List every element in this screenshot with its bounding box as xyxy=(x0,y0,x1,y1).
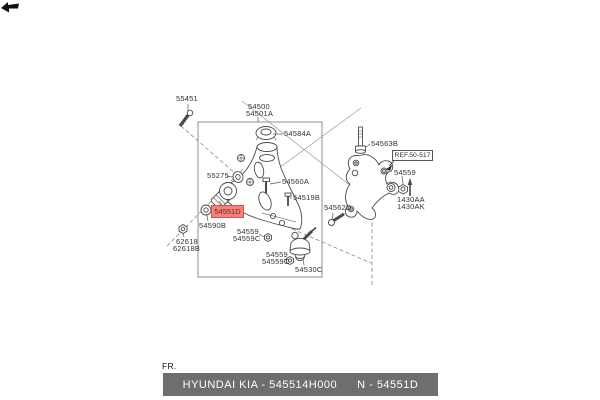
part-label-54530c[interactable]: 54530C xyxy=(295,266,322,274)
nut-54559-knuckle-drawing xyxy=(399,185,408,195)
part-label-55451[interactable]: 55451 xyxy=(176,95,198,103)
part-label-62618b[interactable]: 62618B xyxy=(173,245,200,253)
fr-direction-label: FR. xyxy=(162,361,177,371)
parts-diagram-page: 55451 54500 54501A 54584A 55275 54560A 5… xyxy=(0,0,600,400)
part-label-54559-knuckle[interactable]: 54559 xyxy=(394,169,416,177)
ref-link-50-517[interactable]: REF.50-517 xyxy=(392,150,433,161)
part-label-54559c-mid[interactable]: 54559C xyxy=(233,235,260,243)
part-label-54562d[interactable]: 54562D xyxy=(324,204,351,212)
bushing-54584a-drawing xyxy=(256,127,276,141)
footer-part-number-bar: HYUNDAI KIA - 545514H000 N - 54551D xyxy=(163,373,438,396)
part-label-1430ak[interactable]: 1430AK xyxy=(397,203,425,211)
bolt-55451-drawing xyxy=(180,110,193,126)
part-label-54563b[interactable]: 54563B xyxy=(371,140,398,148)
bolt-54562d-drawing xyxy=(329,214,345,226)
part-label-54590b[interactable]: 54590B xyxy=(199,222,226,230)
part-label-55275[interactable]: 55275 xyxy=(207,172,229,180)
stud-1430-drawing xyxy=(408,180,411,197)
footer-catalog-code: HYUNDAI KIA - 545514H000 xyxy=(183,379,337,391)
part-label-54560a[interactable]: 54560A xyxy=(282,178,309,186)
part-label-54519b[interactable]: 54519B xyxy=(293,194,320,202)
nut-54559c-mid-drawing xyxy=(265,234,272,242)
bolt-54563b-drawing xyxy=(356,127,366,153)
part-label-54559c-balljoint[interactable]: 54559C xyxy=(262,258,289,266)
part-label-54501a[interactable]: 54501A xyxy=(246,110,273,118)
part-label-54584a[interactable]: 54584A xyxy=(284,130,311,138)
highlighted-part-label-54551d[interactable]: 54551D xyxy=(211,205,244,218)
ball-joint-54530c-drawing xyxy=(290,228,316,261)
footer-part-code: N - 54551D xyxy=(357,379,418,391)
nut-62618-drawing xyxy=(179,225,187,234)
fr-direction-arrow-icon xyxy=(0,0,20,13)
washer-54590b-drawing xyxy=(201,205,211,215)
